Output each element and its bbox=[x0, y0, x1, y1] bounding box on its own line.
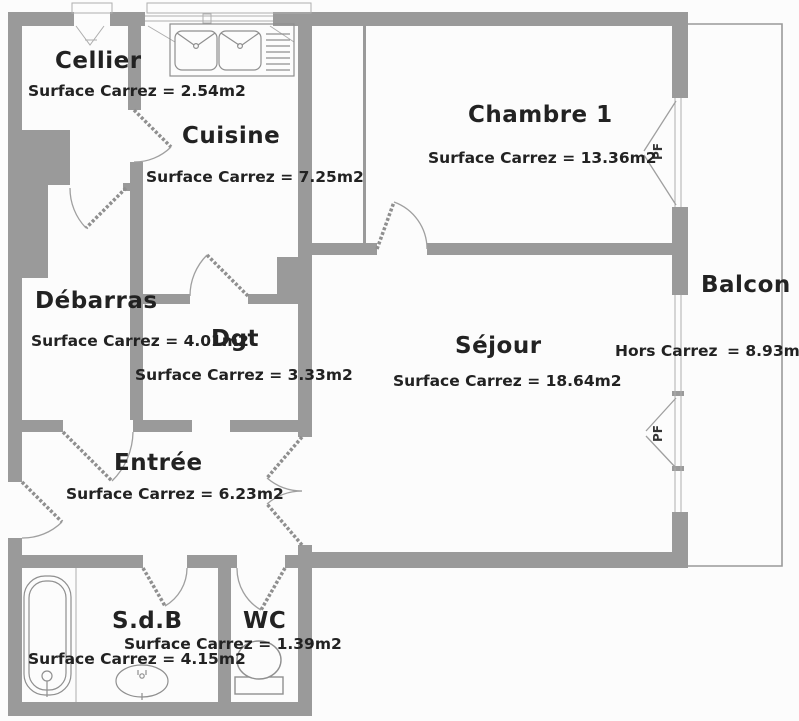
area-label-entree: Surface Carrez = 6.23m2 bbox=[66, 487, 284, 503]
room-label-cellier: Cellier bbox=[55, 50, 142, 73]
door-cuisine bbox=[190, 255, 248, 296]
area-label-sdb: Surface Carrez = 4.15m2 bbox=[28, 652, 246, 668]
floor-plan: PF PF bbox=[0, 0, 799, 721]
area-label-dgt: Surface Carrez = 3.33m2 bbox=[135, 368, 353, 384]
area-label-sejour: Surface Carrez = 18.64m2 bbox=[393, 374, 622, 390]
area-label-balcon-value: = 8.93m2 bbox=[727, 344, 799, 360]
kitchen-sink-icon bbox=[170, 24, 294, 76]
door-wc bbox=[237, 568, 285, 610]
door-cellier-debarras bbox=[70, 188, 126, 228]
cellier-vent-icon bbox=[72, 3, 112, 45]
area-label-cellier: Surface Carrez = 2.54m2 bbox=[28, 84, 246, 100]
room-label-wc: WC bbox=[243, 610, 286, 633]
room-label-chambre1: Chambre 1 bbox=[468, 104, 613, 127]
door-entrance bbox=[22, 482, 62, 538]
washbasin-icon bbox=[116, 665, 168, 700]
area-label-balcon-prefix: Hors Carrez bbox=[615, 344, 718, 360]
door-cellier-cuisine bbox=[134, 110, 171, 162]
room-label-sejour: Séjour bbox=[455, 335, 542, 358]
french-door-sejour-icon: PF bbox=[646, 295, 681, 512]
room-label-sdb: S.d.B bbox=[112, 610, 183, 633]
area-label-wc: Surface Carrez = 1.39m2 bbox=[124, 637, 342, 653]
room-label-cuisine: Cuisine bbox=[182, 125, 280, 148]
door-sdb bbox=[143, 568, 187, 606]
door-chambre1 bbox=[377, 202, 427, 249]
room-label-dgt: Dgt bbox=[211, 328, 259, 351]
room-label-debarras: Débarras bbox=[35, 290, 158, 313]
room-label-balcon: Balcon bbox=[701, 274, 791, 297]
area-label-cuisine: Surface Carrez = 7.25m2 bbox=[146, 170, 364, 186]
room-label-entree: Entrée bbox=[114, 452, 203, 475]
window-label-pf-sejour: PF bbox=[651, 425, 665, 442]
bathtub-icon bbox=[24, 568, 76, 702]
area-label-chambre1: Surface Carrez = 13.36m2 bbox=[428, 151, 657, 167]
